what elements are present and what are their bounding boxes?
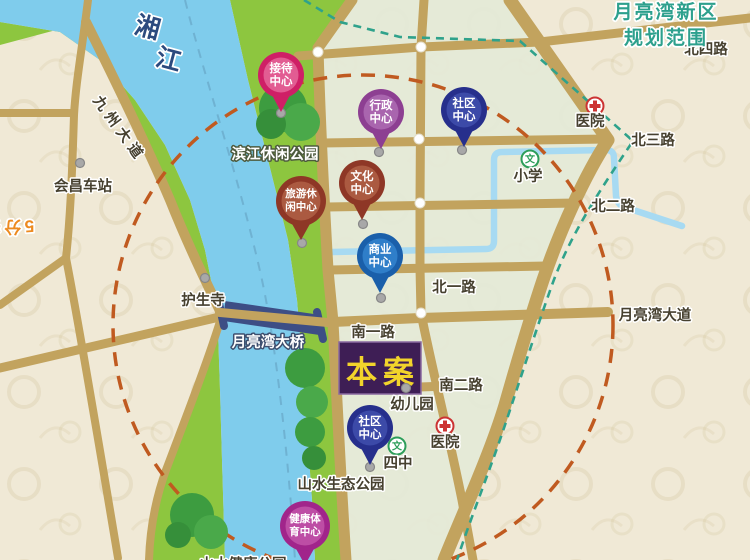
svg-text:中心: 中心 [369,255,392,269]
svg-text:社区: 社区 [358,414,382,428]
primary-school-icon: 文 [522,151,539,168]
planning-note-line2: 规划范围 [624,26,708,49]
svg-text:健康体: 健康体 [289,512,321,525]
husheng-temple-label: 护生寺 [181,291,225,309]
map-canvas: 本案 文 文 接待 中心 行政 [0,0,750,560]
hospital-icon-south [437,418,454,435]
svg-text:文化: 文化 [351,169,374,183]
location-map: 本案 文 文 接待 中心 行政 [0,0,750,560]
svg-text:中心: 中心 [359,427,382,441]
south1-road-label: 南一路 [351,323,395,341]
kindergarten-label: 幼儿园 [390,395,434,413]
hospital-icon-north [587,98,604,115]
huichang-station-label: 会昌车站 [54,177,112,195]
svg-text:接待: 接待 [270,61,293,75]
svg-text:育中心: 育中心 [289,525,321,538]
hospital-south-label: 医院 [431,433,460,451]
north2-road-label: 北二路 [591,197,635,215]
svg-text:商业: 商业 [369,242,392,256]
no4-school-icon: 文 [389,438,406,455]
primary-school-label: 小学 [514,167,543,185]
binjiang-park-label: 滨江休闲公园 [232,145,319,163]
planning-note-line1: 月亮湾新区 [612,0,718,23]
svg-text:中心: 中心 [370,111,393,125]
moonbay-bridge-label: 月亮湾大桥 [231,333,305,351]
hospital-north-label: 医院 [576,112,605,130]
north1-road-label: 北一路 [432,278,476,296]
svg-text:中心: 中心 [453,109,476,123]
south2-road-label: 南二路 [439,376,483,394]
north3-road-label: 北三路 [631,131,675,149]
shanshui-eco-park-label: 山水生态公园 [298,475,385,493]
svg-text:文: 文 [525,153,536,166]
svg-text:中心: 中心 [270,74,293,88]
no4-school-label: 四中 [384,454,413,472]
svg-text:旅游休: 旅游休 [285,187,317,200]
svg-text:闲中心: 闲中心 [285,200,317,213]
svg-text:中心: 中心 [351,182,374,196]
svg-text:社区: 社区 [452,96,476,110]
svg-text:行政: 行政 [369,98,393,112]
svg-text:文: 文 [392,440,403,453]
moonbay-avenue-label: 月亮湾大道 [618,306,692,324]
